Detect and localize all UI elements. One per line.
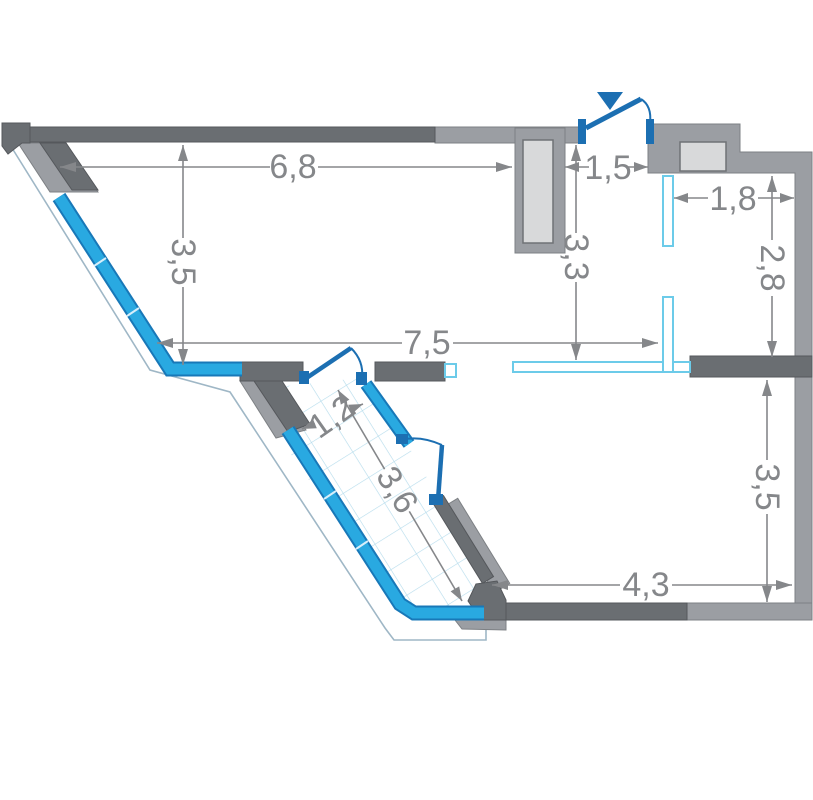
dimension-label: 7,5 (403, 324, 450, 362)
wall-bottom-corner-light (455, 620, 506, 630)
arrow-right (780, 193, 794, 203)
arrow-down (571, 344, 581, 360)
wall-block-balcony-left (240, 362, 303, 381)
arrow-left (565, 162, 579, 172)
arrow-left (674, 193, 688, 203)
partition-vertical-lower (663, 297, 673, 372)
dimension-6-8: 6,8 (60, 148, 512, 186)
partition-tab (445, 364, 456, 377)
wall-bottom-dark (483, 603, 687, 620)
entrance-triangle-icon (597, 92, 623, 110)
dimension-label: 3,3 (557, 233, 595, 280)
wall-bottom-light (687, 603, 812, 620)
floor-plan-canvas: 6,8 3,5 1,5 1,8 3,3 (0, 0, 813, 800)
partition-vertical-upper (663, 176, 673, 246)
wall-mid-dark (690, 356, 812, 377)
arrow-up (178, 145, 188, 161)
floor-plan-svg: 6,8 3,5 1,5 1,8 3,3 (0, 0, 813, 800)
arrow-down (762, 586, 772, 602)
arrow-right (642, 338, 658, 348)
dimension-label: 1,5 (584, 149, 631, 187)
dimension-label: 2,8 (753, 244, 791, 291)
arrow-right (776, 580, 792, 590)
shaft-bathroom (680, 142, 726, 171)
wall-top-dark (8, 127, 435, 142)
shaft-vertical (523, 140, 553, 243)
dimension-3-5-left: 3,5 (164, 145, 202, 365)
dimension-4-3: 4,3 (492, 566, 792, 604)
dimension-1-8: 1,8 (674, 180, 794, 218)
arrow-down (767, 341, 777, 357)
arrow-up (762, 380, 772, 396)
arrow-right (634, 162, 648, 172)
dimension-label: 3,5 (164, 238, 202, 285)
dimension-3-5-right: 3,5 (748, 380, 786, 602)
balcony-side-door-leaf (438, 445, 442, 500)
dimension-label: 4,3 (622, 566, 669, 604)
arrow-up (767, 176, 777, 192)
dimension-label: 1,8 (709, 180, 756, 218)
dimension-7-5: 7,5 (157, 324, 658, 362)
arrow-up (571, 145, 581, 161)
wall-right-lower (795, 377, 812, 603)
arrow-right (496, 162, 512, 172)
entrance-jamb-left (578, 119, 586, 144)
wall-block-kitchen (375, 362, 445, 381)
dimension-2-8: 2,8 (753, 176, 791, 357)
dimension-label: 3,5 (748, 463, 786, 510)
dimension-label: 6,8 (269, 148, 316, 186)
balcony-top-door (299, 348, 367, 385)
entrance-door (578, 92, 654, 144)
balcony-top-door-leaf (305, 348, 351, 379)
